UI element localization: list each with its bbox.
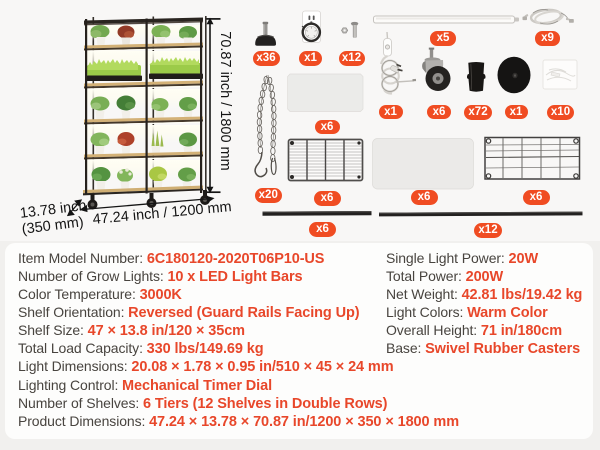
svg-text:70.87 inch / 1800 mm: 70.87 inch / 1800 mm [217,31,233,170]
